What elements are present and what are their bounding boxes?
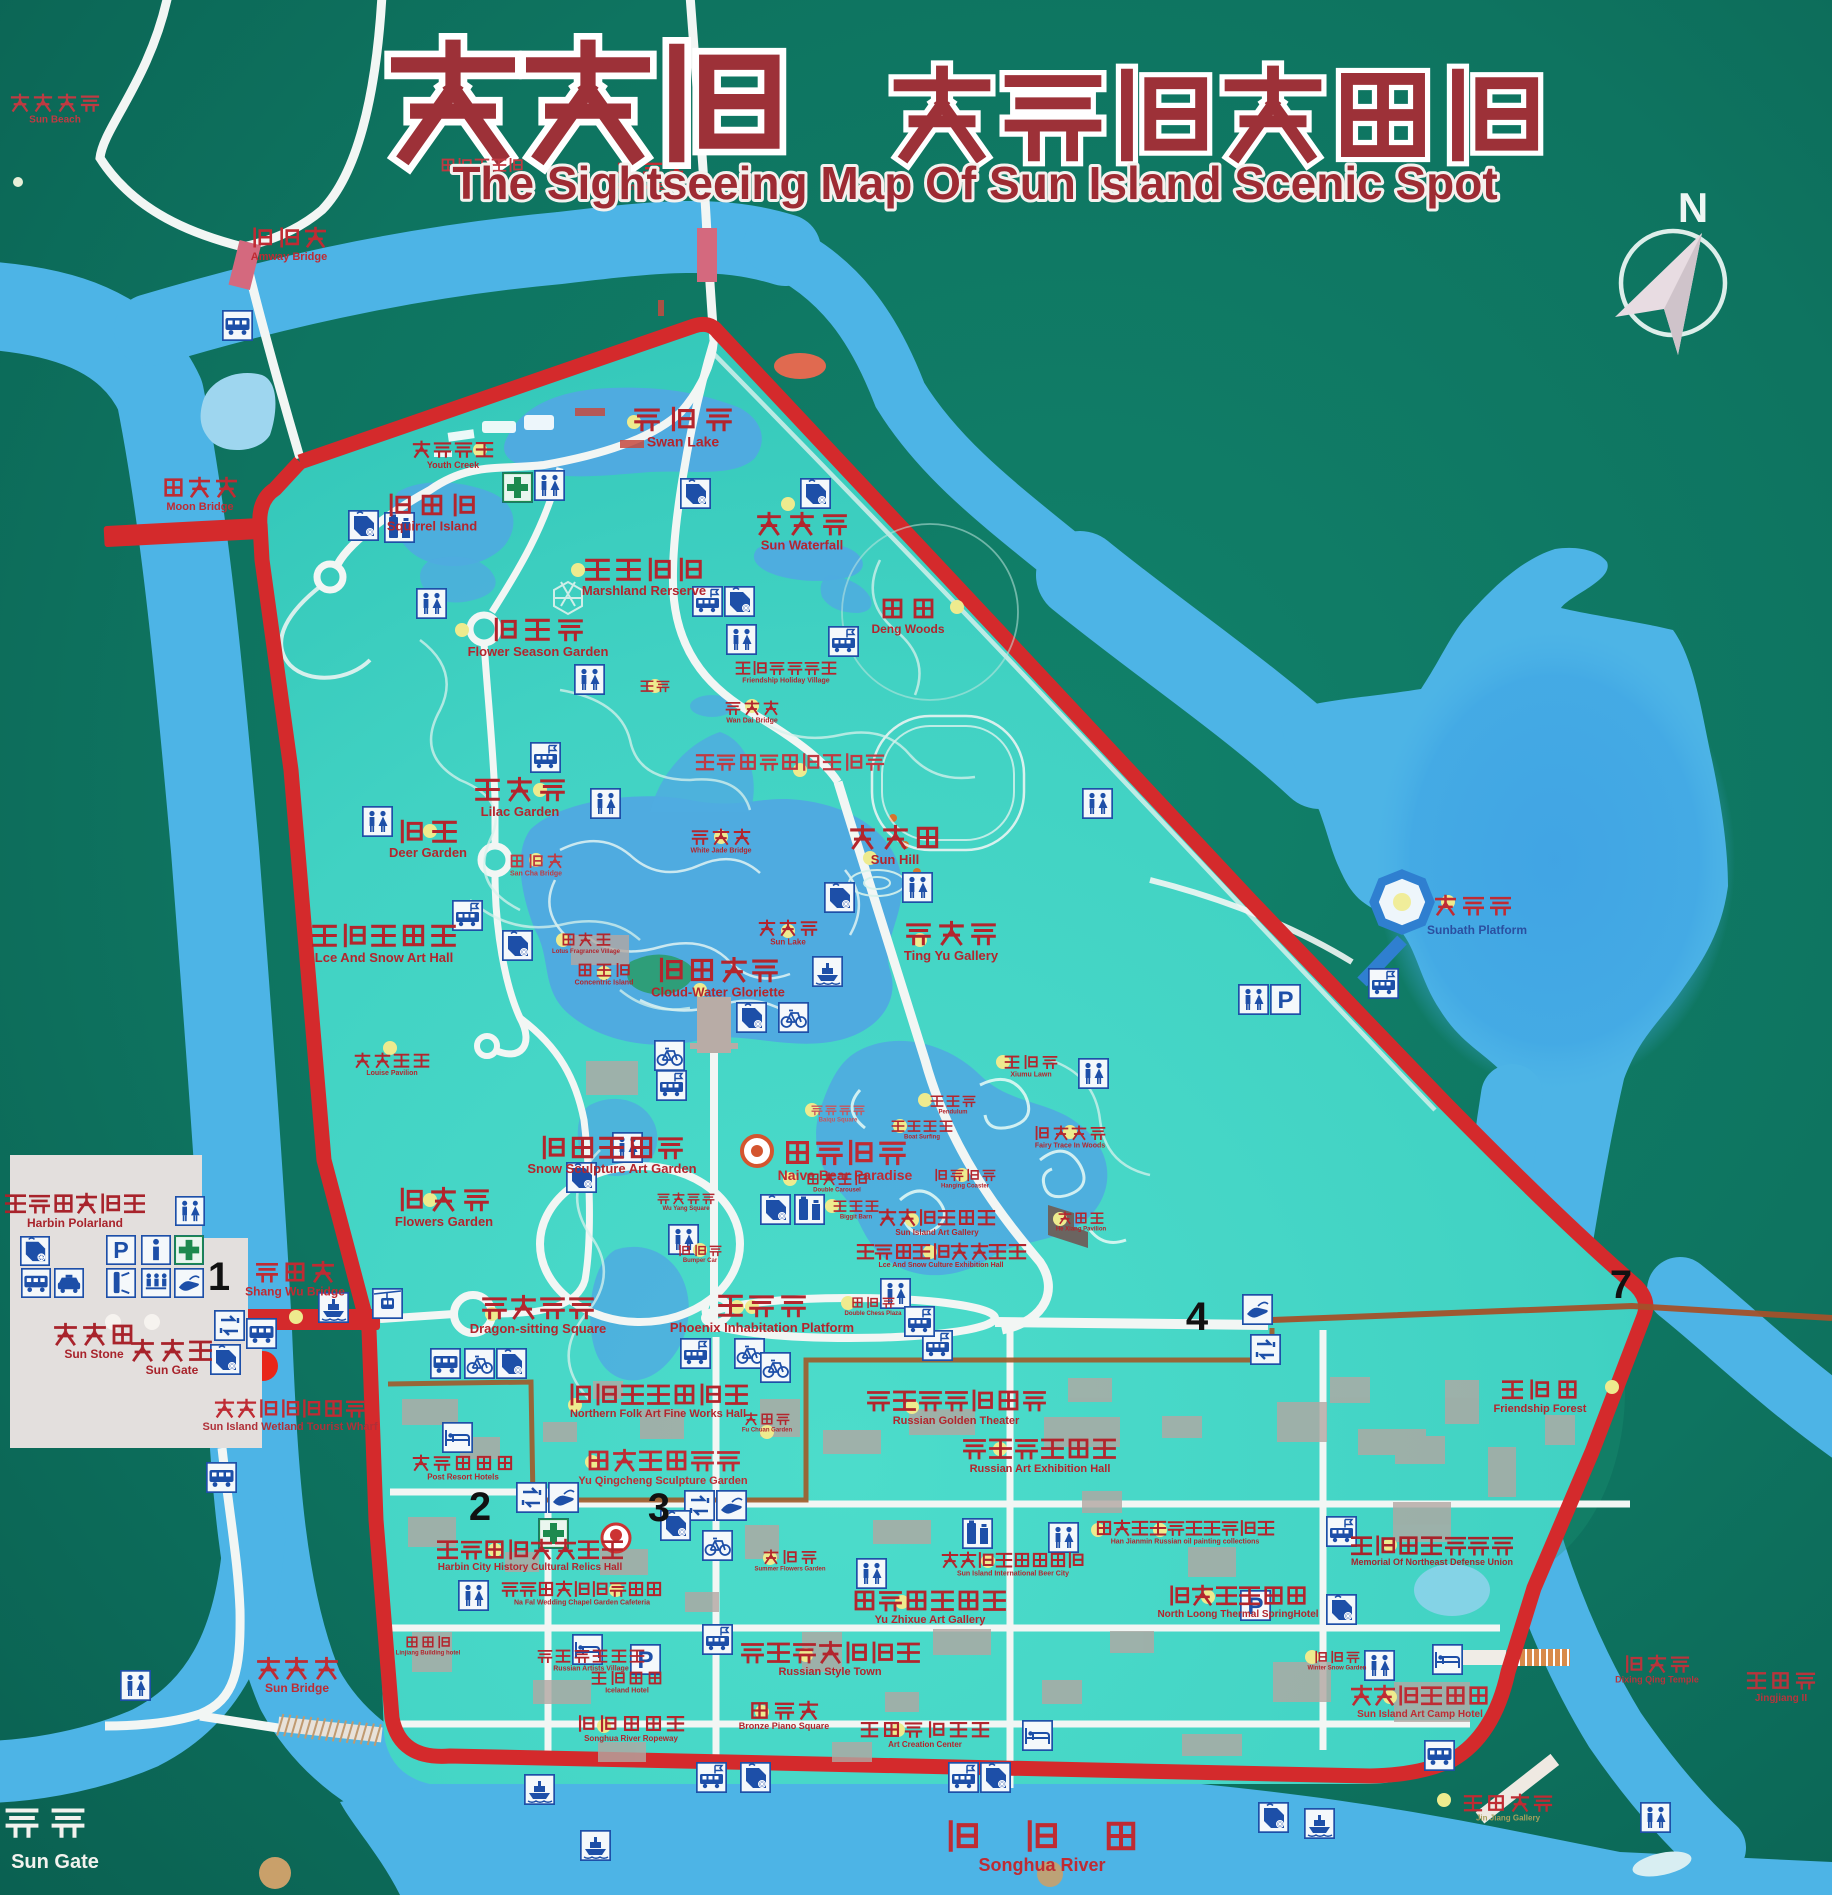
svg-text:Jingjiang II: Jingjiang II — [1755, 1693, 1807, 1704]
svg-text:Wu Yang Square: Wu Yang Square — [662, 1206, 710, 1212]
svg-text:Cloud-Water Gloriette: Cloud-Water Gloriette — [651, 984, 785, 999]
svg-text:Lce And Snow Culture Exhibitio: Lce And Snow Culture Exhibition Hall — [879, 1262, 1004, 1269]
svg-text:Russian Golden Theater: Russian Golden Theater — [893, 1415, 1020, 1427]
svg-text:Sun Beach: Sun Beach — [29, 115, 81, 126]
svg-text:Sun Island Wetland Tourist Wha: Sun Island Wetland Tourist Wharf — [203, 1421, 378, 1433]
svg-text:Sun Island Art Gallery: Sun Island Art Gallery — [895, 1228, 979, 1237]
svg-text:Winter Snow Garden: Winter Snow Garden — [1308, 1666, 1367, 1672]
svg-text:Fairy Trace In Woods: Fairy Trace In Woods — [1035, 1143, 1105, 1150]
svg-text:Swan Lake: Swan Lake — [647, 433, 720, 449]
svg-text:Double Chess Plaza: Double Chess Plaza — [844, 1311, 902, 1317]
svg-text:Northern Folk Art Fine Works H: Northern Folk Art Fine Works Hall — [570, 1408, 746, 1420]
svg-text:Lilac Garden: Lilac Garden — [481, 804, 560, 819]
svg-text:Bumper Car: Bumper Car — [683, 1258, 718, 1264]
svg-text:Iceland Hotel: Iceland Hotel — [605, 1688, 649, 1695]
svg-text:Sun Stone: Sun Stone — [64, 1347, 124, 1361]
svg-text:Xiumu Lawn: Xiumu Lawn — [1010, 1072, 1051, 1079]
svg-text:Moon Bridge: Moon Bridge — [166, 501, 233, 513]
svg-text:Phoenix Inhabitation Platform: Phoenix Inhabitation Platform — [670, 1320, 854, 1335]
svg-text:Dixing Qing Temple: Dixing Qing Temple — [1615, 1675, 1699, 1685]
svg-text:San Cha Bridge: San Cha Bridge — [510, 871, 562, 878]
svg-text:Fu Chuan Garden: Fu Chuan Garden — [742, 1428, 793, 1434]
svg-text:Jin Jiang Gallery: Jin Jiang Gallery — [1476, 1814, 1541, 1823]
svg-text:Marshland Rerserve: Marshland Rerserve — [582, 583, 706, 598]
svg-text:Bronze Piano Square: Bronze Piano Square — [739, 1721, 830, 1731]
svg-text:Russian Art Exhibition Hall: Russian Art Exhibition Hall — [970, 1463, 1111, 1475]
svg-text:Wan Dai Bridge: Wan Dai Bridge — [726, 718, 778, 725]
svg-text:Shang Wu Bridge: Shang Wu Bridge — [245, 1284, 345, 1298]
svg-text:Songhua River Ropeway: Songhua River Ropeway — [584, 1734, 678, 1743]
svg-text:Biggit Barn: Biggit Barn — [840, 1215, 873, 1221]
svg-text:1: 1 — [208, 1255, 230, 1299]
svg-text:Art Creation Center: Art Creation Center — [888, 1740, 962, 1749]
svg-text:Deer Garden: Deer Garden — [389, 845, 467, 860]
svg-text:Post Resort Hotels: Post Resort Hotels — [427, 1473, 499, 1482]
svg-text:Sun Lake: Sun Lake — [770, 938, 806, 947]
svg-text:Deng Woods: Deng Woods — [871, 622, 944, 636]
svg-text:Sun Gate: Sun Gate — [146, 1363, 199, 1377]
svg-text:Snow Sculpture Art Garden: Snow Sculpture Art Garden — [527, 1161, 696, 1176]
svg-text:Summer Flowers Garden: Summer Flowers Garden — [754, 1567, 825, 1573]
svg-text:Youth Creek: Youth Creek — [427, 460, 480, 470]
svg-text:Flower Season Garden: Flower Season Garden — [468, 644, 609, 659]
svg-text:Pendulum: Pendulum — [938, 1110, 967, 1116]
svg-text:Songhua River: Songhua River — [978, 1855, 1105, 1875]
svg-text:Sun Island Art Camp Hotel: Sun Island Art Camp Hotel — [1357, 1709, 1483, 1720]
svg-text:Lce And Snow Art Hall: Lce And Snow Art Hall — [315, 950, 453, 965]
svg-text:Yu Zhixue Art Gallery: Yu Zhixue Art Gallery — [875, 1614, 987, 1626]
svg-text:Na Fal Wedding Chapel Garden C: Na Fal Wedding Chapel Garden Cafeteria — [514, 1600, 650, 1607]
svg-text:7: 7 — [1610, 1263, 1632, 1307]
svg-text:Hanging Coaster: Hanging Coaster — [941, 1184, 990, 1190]
svg-text:Han Jianmin Russian oil painti: Han Jianmin Russian oil painting collect… — [1111, 1539, 1260, 1546]
svg-text:Double Carousel: Double Carousel — [813, 1188, 861, 1194]
svg-text:Harbin Polarland: Harbin Polarland — [27, 1216, 123, 1230]
svg-text:Friendship Forest: Friendship Forest — [1494, 1403, 1587, 1415]
svg-text:North Loong Thermal SpringHote: North Loong Thermal SpringHotel — [1157, 1609, 1318, 1620]
svg-text:4: 4 — [1186, 1295, 1209, 1339]
svg-text:Sun Island International Beer: Sun Island International Beer City — [957, 1571, 1069, 1578]
svg-text:Sun Gate: Sun Gate — [11, 1851, 99, 1873]
svg-text:He Xiang Pavilion: He Xiang Pavilion — [1056, 1227, 1107, 1233]
svg-text:Squirrel Island: Squirrel Island — [387, 518, 477, 533]
svg-text:Sunbath Platform: Sunbath Platform — [1427, 923, 1527, 937]
svg-text:N: N — [1678, 184, 1708, 231]
svg-text:Harbin City History Cultural R: Harbin City History Cultural Relics Hall — [438, 1562, 623, 1573]
svg-text:2: 2 — [469, 1485, 491, 1529]
svg-text:Louise Pavilion: Louise Pavilion — [366, 1070, 417, 1077]
svg-text:Linjiang Building hotel: Linjiang Building hotel — [396, 1651, 461, 1657]
svg-text:Memorial Of Northeast Defense: Memorial Of Northeast Defense Union — [1351, 1557, 1513, 1567]
svg-text:Russian Artists Village: Russian Artists Village — [553, 1666, 629, 1673]
svg-text:Lotus Fragrance Village: Lotus Fragrance Village — [552, 949, 621, 955]
svg-text:Concentric Island: Concentric Island — [575, 980, 634, 987]
svg-text:Friendship Holiday Village: Friendship Holiday Village — [742, 678, 829, 685]
svg-text:Sun Bridge: Sun Bridge — [265, 1681, 329, 1695]
svg-text:3: 3 — [648, 1486, 670, 1530]
svg-text:Ting Yu Gallery: Ting Yu Gallery — [904, 948, 999, 963]
svg-text:Sun Hill: Sun Hill — [871, 852, 919, 867]
svg-text:Baiqu Square: Baiqu Square — [819, 1118, 858, 1124]
svg-text:Dragon-sitting Square: Dragon-sitting Square — [470, 1321, 607, 1336]
svg-text:Sun Waterfall: Sun Waterfall — [761, 537, 844, 552]
svg-text:White Jade Bridge: White Jade Bridge — [690, 848, 751, 855]
svg-text:The Sightseeing Map Of Sun Isl: The Sightseeing Map Of Sun Island Scenic… — [452, 157, 1497, 209]
svg-text:Boat Surfing: Boat Surfing — [904, 1135, 940, 1141]
svg-text:Russian Style Town: Russian Style Town — [778, 1666, 881, 1678]
svg-text:Flowers Garden: Flowers Garden — [395, 1214, 493, 1229]
svg-text:Amway Bridge: Amway Bridge — [251, 251, 327, 263]
